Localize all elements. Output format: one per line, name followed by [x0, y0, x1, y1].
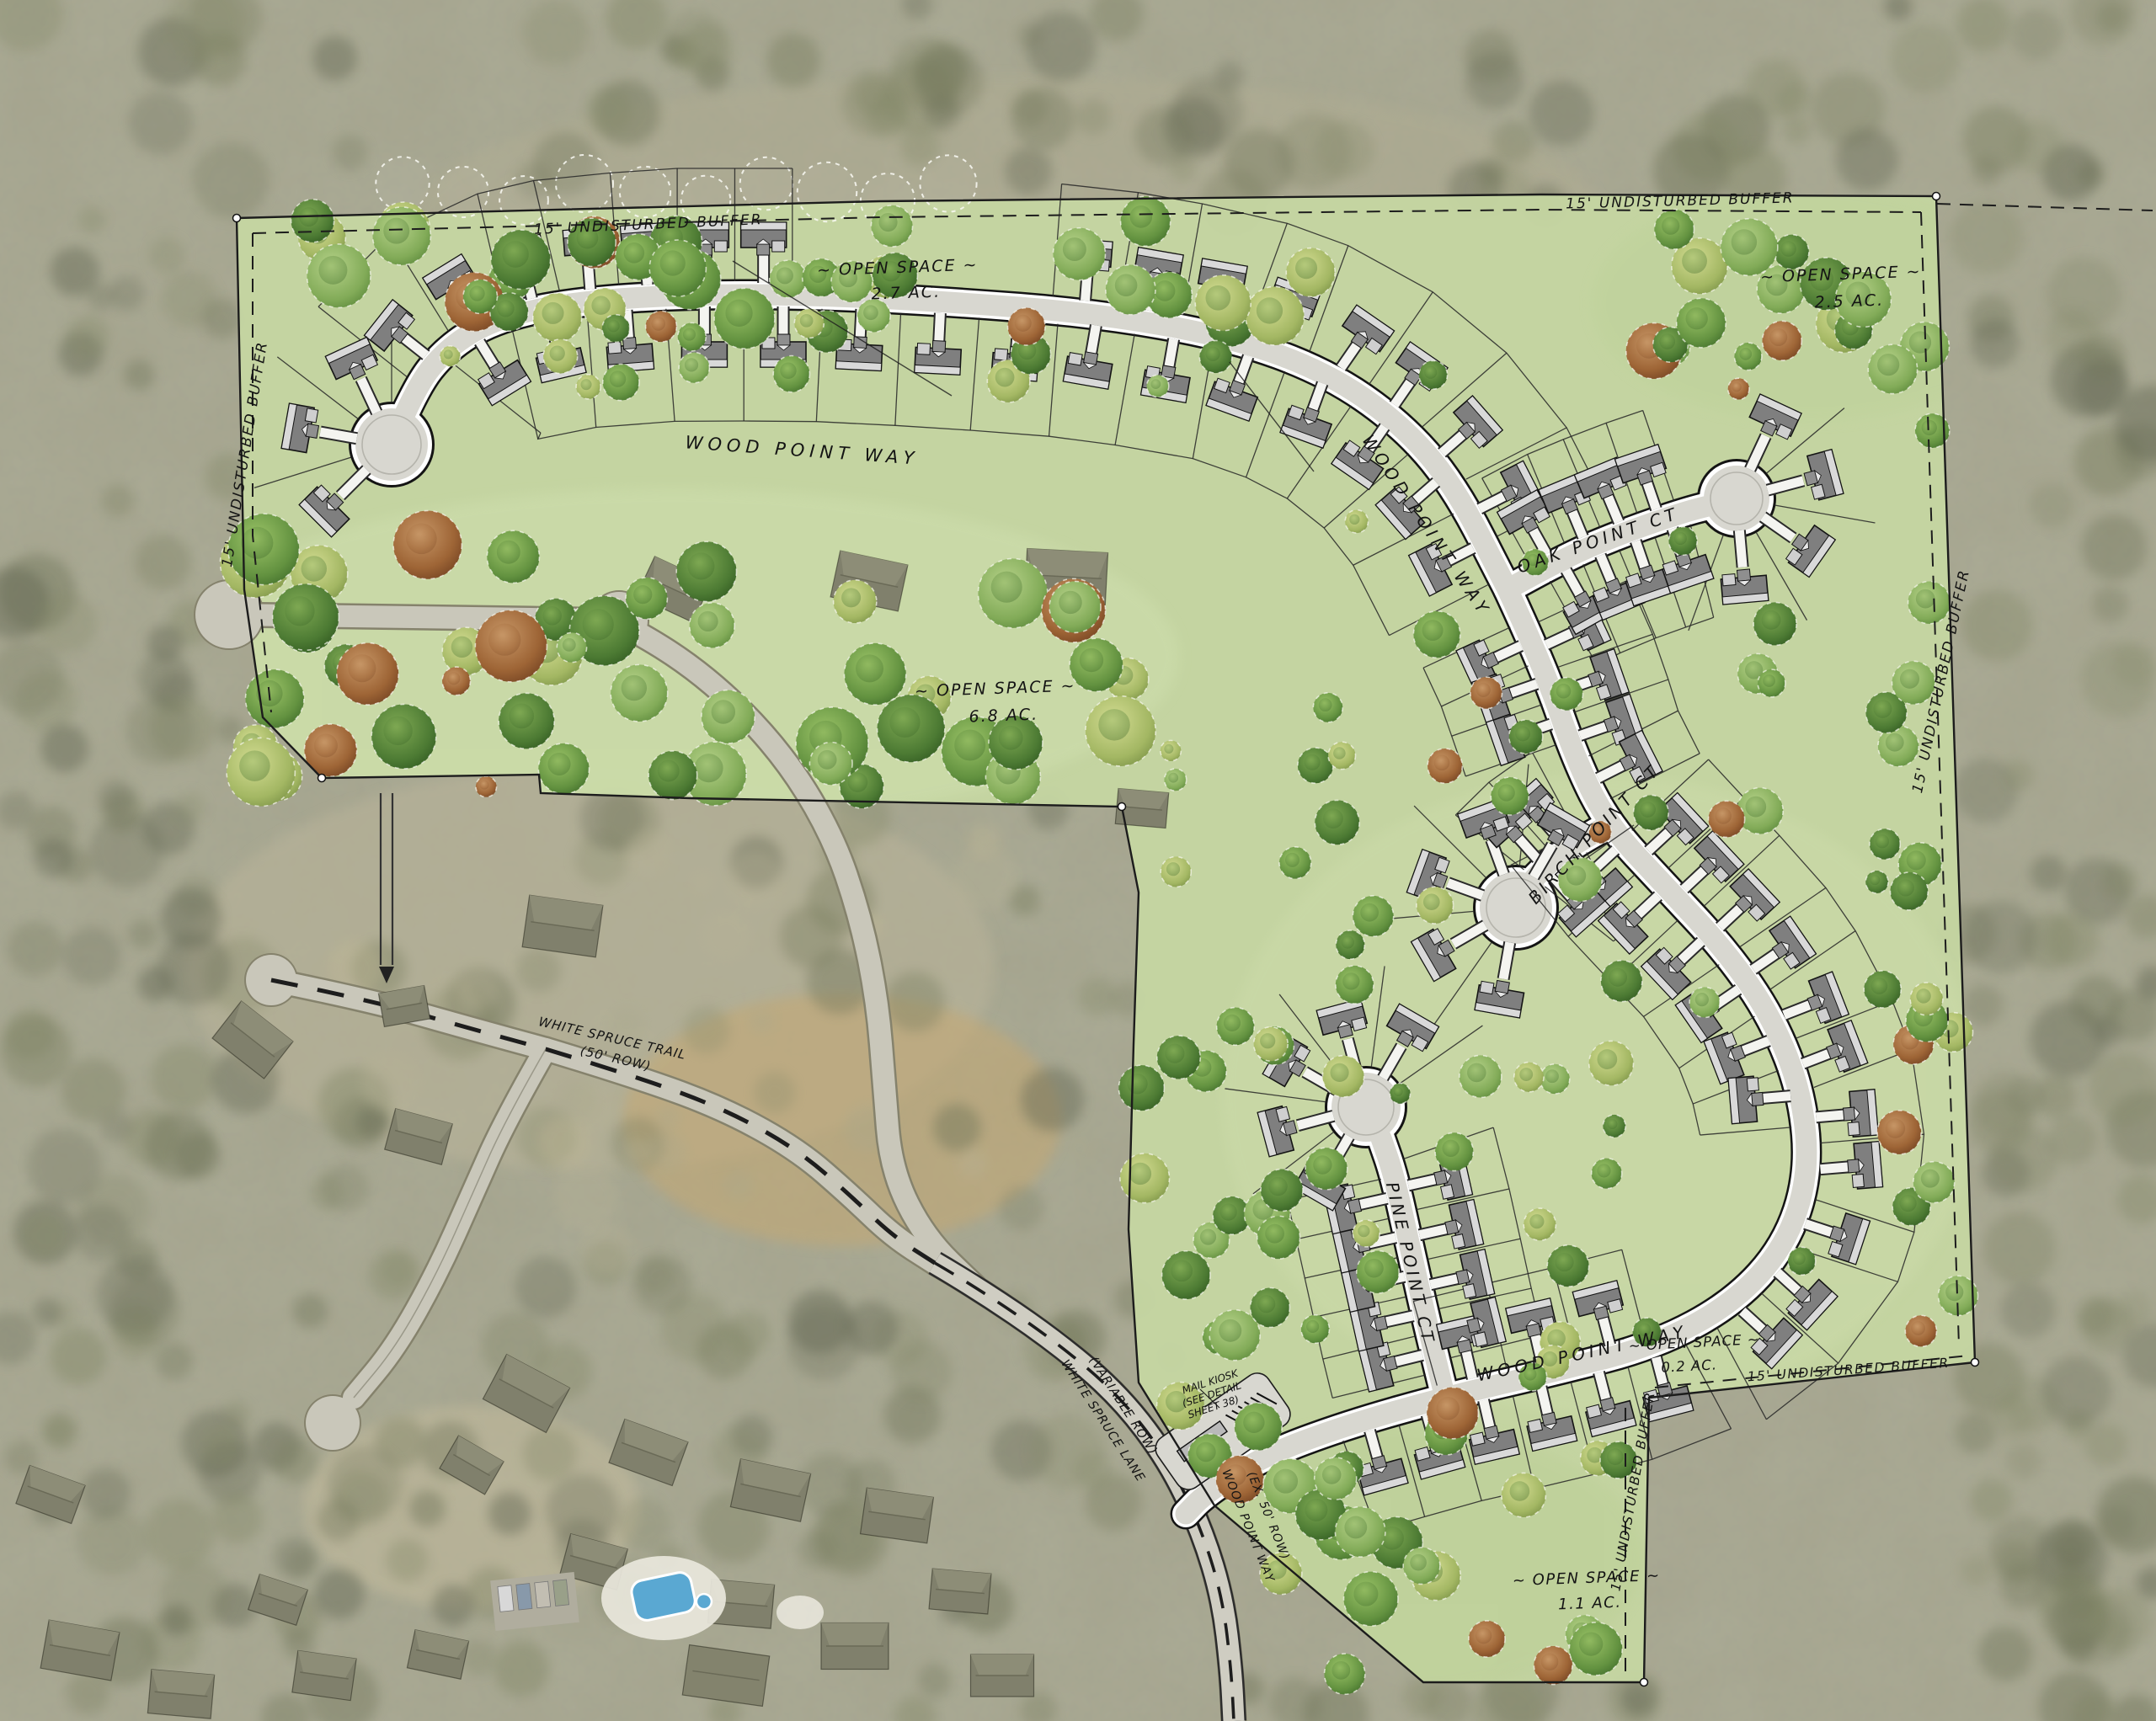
canopy-shade [1129, 1163, 1151, 1185]
canopy-shade [856, 654, 883, 682]
tree [676, 541, 736, 601]
forest-canopy [2011, 120, 2064, 173]
tree [1540, 1064, 1569, 1094]
label-open_spaces-1-acreage: 2.5 AC. [1814, 291, 1884, 312]
canopy-shade [1319, 698, 1332, 711]
driveway [1739, 530, 1742, 567]
survey-corner-marker [1933, 193, 1940, 200]
garage [1441, 1185, 1454, 1199]
ornamental-tree [1762, 321, 1801, 360]
tree [1353, 896, 1393, 936]
forest-canopy [683, 1006, 730, 1053]
ornamental-tree [1728, 378, 1749, 399]
forest-canopy [1075, 99, 1111, 135]
tree [576, 375, 600, 399]
forest-canopy [1783, 116, 1811, 144]
canopy-shade [447, 672, 460, 685]
forest-canopy [78, 206, 105, 233]
tree [1569, 1622, 1622, 1676]
tree [1315, 800, 1359, 845]
forest-canopy [1214, 61, 1244, 91]
tree [1147, 375, 1169, 397]
tree [648, 751, 697, 800]
ornamental-tree [646, 311, 677, 342]
existing-house [971, 1654, 1034, 1697]
survey-corner-marker [318, 775, 326, 782]
tree [1419, 360, 1448, 389]
canopy-shade [1674, 532, 1687, 545]
canopy-shade [239, 750, 270, 781]
forest-canopy [72, 1204, 130, 1261]
canopy-shade [547, 753, 570, 775]
tree [1336, 966, 1374, 1004]
ornamental-tree [1007, 308, 1045, 346]
tree [1298, 748, 1333, 783]
cleared-texture [539, 1116, 591, 1169]
forest-canopy [725, 1311, 771, 1356]
forest-canopy [27, 1129, 102, 1204]
forest-canopy [1950, 201, 2023, 274]
tree [626, 578, 667, 619]
forest-canopy [2007, 1444, 2041, 1479]
forest-canopy [766, 34, 820, 88]
canopy-shade [1305, 1499, 1327, 1521]
forest-canopy [8, 921, 63, 977]
canopy-shade [1342, 972, 1359, 989]
tree [371, 704, 436, 769]
forest-canopy [1978, 1627, 2032, 1681]
existing-culdesac [306, 1396, 360, 1450]
forest-canopy [517, 948, 561, 992]
forest-canopy [2041, 1356, 2111, 1426]
tree [1654, 210, 1694, 249]
tree [557, 632, 586, 662]
driveway [320, 432, 356, 439]
forest-canopy [2045, 913, 2099, 967]
existing-house [821, 1623, 889, 1670]
canopy-shade [1442, 1140, 1459, 1157]
forest-canopy [2094, 1018, 2122, 1047]
driveway [1168, 339, 1174, 370]
canopy-shade [776, 267, 793, 284]
forest-canopy [175, 1132, 221, 1178]
cleared-texture [952, 845, 1017, 910]
cleared-texture [456, 969, 499, 1011]
forest-canopy [151, 1044, 217, 1111]
forest-canopy [44, 1415, 72, 1443]
canopy-shade [1597, 1164, 1610, 1177]
canopy-shade [1257, 297, 1283, 323]
garage [1528, 1419, 1543, 1432]
canopy-shade [451, 637, 472, 658]
canopy-shade [1434, 755, 1450, 771]
canopy-shade [1422, 620, 1444, 641]
driveway [1821, 1166, 1853, 1169]
amenity-structure [776, 1596, 824, 1629]
forest-canopy [124, 360, 155, 391]
tree [1286, 248, 1335, 297]
canopy-shade [348, 654, 376, 682]
canopy-shade [889, 707, 920, 738]
forest-canopy [128, 919, 157, 949]
forest-canopy [1402, 1677, 1442, 1717]
tree [1257, 1216, 1300, 1259]
garage [1474, 1332, 1487, 1347]
tree [1677, 298, 1726, 347]
canopy-shade [800, 314, 814, 328]
canopy-shade [1739, 348, 1752, 360]
canopy-shade [1870, 978, 1887, 994]
garage [305, 408, 318, 423]
canopy-shade [1907, 850, 1926, 870]
canopy-shade [1640, 802, 1656, 818]
tree [1788, 1247, 1816, 1275]
canopy-shade [999, 726, 1023, 750]
forest-canopy [34, 839, 72, 877]
tree [1603, 1115, 1625, 1138]
canopy-shade [991, 572, 1022, 603]
canopy-shade [1330, 1063, 1348, 1082]
canopy-shade [1769, 328, 1787, 346]
garage [1452, 1234, 1465, 1249]
tree [1509, 720, 1543, 754]
forest-canopy [99, 780, 134, 815]
ornamental-tree [1470, 677, 1502, 709]
forest-canopy [175, 792, 205, 823]
forest-canopy [36, 593, 97, 653]
forest-canopy [136, 535, 191, 590]
canopy-shade [1900, 669, 1919, 689]
forest-canopy [161, 888, 221, 949]
tree [273, 584, 339, 651]
tree [1734, 343, 1762, 370]
forest-canopy [1963, 985, 2004, 1026]
canopy-shade [1916, 988, 1930, 1003]
canopy-shade [1166, 862, 1180, 876]
forest-canopy [680, 24, 732, 76]
front-gable [777, 334, 790, 345]
forest-canopy [314, 1569, 365, 1619]
canopy-shade [1353, 1582, 1378, 1606]
forest-canopy [2047, 257, 2121, 332]
canopy-shade [241, 527, 273, 559]
tree [1336, 930, 1364, 959]
canopy-shade [1870, 875, 1880, 885]
tree [978, 558, 1047, 627]
canopy-shade [1410, 1554, 1427, 1571]
forest-canopy [2011, 8, 2063, 60]
canopy-shade [995, 368, 1015, 387]
canopy-shade [497, 300, 514, 317]
canopy-shade [1498, 784, 1515, 801]
canopy-shade [1200, 1228, 1216, 1244]
forest-canopy [586, 88, 632, 134]
tree [1161, 856, 1191, 887]
canopy-shade [1205, 285, 1230, 311]
tree-save-circle [740, 157, 793, 210]
forest-canopy [33, 1297, 61, 1326]
parked-car [535, 1581, 551, 1608]
canopy-shade [1555, 1253, 1573, 1271]
cleared-texture [558, 1081, 597, 1120]
forest-canopy [2101, 863, 2138, 900]
tree [1261, 1170, 1303, 1212]
canopy-shade [1313, 1155, 1331, 1174]
canopy-shade [1130, 205, 1153, 228]
front-gable [757, 244, 770, 255]
canopy-shade [818, 750, 837, 770]
forest-canopy [1955, 1413, 1996, 1454]
canopy-shade [406, 524, 437, 555]
tree [611, 664, 668, 722]
canopy-shade [863, 305, 878, 320]
tree [1390, 1083, 1410, 1103]
canopy-shade [1358, 1225, 1369, 1237]
forest-canopy [1529, 81, 1593, 146]
forest-canopy [109, 276, 145, 312]
front-gable [932, 340, 946, 352]
forest-canopy [161, 1561, 230, 1630]
forest-canopy [1011, 88, 1074, 150]
roof-facet [971, 1654, 1034, 1676]
parked-car [516, 1584, 532, 1611]
canopy-shade [1150, 379, 1161, 389]
forest-canopy [2006, 1077, 2045, 1116]
canopy-shade [1127, 1074, 1147, 1094]
forest-canopy [147, 626, 183, 662]
forest-canopy [1026, 12, 1096, 82]
ornamental-tree [442, 667, 471, 695]
canopy-shade [1424, 366, 1437, 379]
tree [1324, 1654, 1364, 1694]
tree [773, 356, 809, 392]
tree [1344, 1572, 1398, 1626]
existing-house [522, 895, 603, 957]
canopy-shade [479, 781, 488, 790]
forest-canopy [2003, 760, 2034, 791]
canopy-shade [1876, 834, 1889, 848]
canopy-shade [1349, 514, 1359, 525]
tree-save-circle [556, 155, 613, 212]
cleared-texture [581, 1223, 632, 1275]
canopy-shade [497, 541, 520, 564]
forest-canopy [61, 1058, 126, 1123]
canopy-shade [1909, 331, 1931, 353]
tree [1413, 611, 1460, 658]
cleared-texture [723, 1170, 754, 1200]
canopy-shade [1265, 1224, 1284, 1244]
garage [1722, 574, 1736, 586]
canopy-shade [1945, 1283, 1963, 1301]
forest-canopy [211, 1493, 263, 1544]
canopy-shade [1219, 1319, 1241, 1342]
parking-lot [490, 1572, 579, 1631]
garage [772, 241, 785, 252]
forest-canopy [1961, 590, 2033, 662]
canopy-shade [1243, 1412, 1264, 1433]
cleared-texture [958, 1148, 988, 1178]
tree [1550, 678, 1582, 711]
canopy-shade [687, 552, 714, 579]
parked-car [553, 1580, 569, 1606]
canopy-shade [1331, 1661, 1350, 1680]
tree [1514, 1063, 1544, 1092]
garage [1470, 1432, 1486, 1446]
tree [1357, 1250, 1399, 1292]
tree [245, 669, 303, 727]
label-open_spaces-2-acreage: 6.8 AC. [969, 706, 1038, 727]
garage [917, 344, 931, 355]
forest-canopy [0, 1015, 72, 1087]
tree [373, 207, 431, 265]
forest-canopy [1492, 120, 1535, 163]
forest-canopy [2030, 855, 2067, 892]
canopy-shade [1763, 674, 1775, 687]
cleared-texture [656, 1106, 680, 1130]
canopy-shade [651, 317, 665, 331]
tree [1353, 1220, 1380, 1247]
tree [1195, 275, 1251, 331]
forest-canopy [891, 1340, 953, 1402]
canopy-shade [1260, 1033, 1275, 1048]
canopy-shade [1662, 217, 1679, 235]
forest-canopy [1991, 1125, 2057, 1191]
site-plan-page: 15' UNDISTURBED BUFFER15' UNDISTURBED BU… [0, 0, 2156, 1721]
tree [1910, 983, 1943, 1015]
canopy-shade [1467, 1063, 1486, 1083]
tree [871, 205, 912, 247]
tree [1753, 602, 1796, 645]
canopy-shade [1285, 853, 1299, 867]
forest-canopy [2077, 160, 2104, 187]
canopy-shade [1476, 683, 1491, 697]
canopy-shade [1659, 333, 1675, 349]
cleared-texture [360, 1052, 421, 1112]
forest-canopy [2112, 642, 2156, 687]
tree [1161, 740, 1182, 761]
forest-canopy [1005, 147, 1052, 194]
tree [878, 695, 945, 762]
tree [690, 603, 735, 648]
canopy-shade [1364, 1259, 1384, 1278]
canopy-shade [1273, 1469, 1298, 1494]
tree [227, 738, 295, 806]
front-gable [1848, 1159, 1860, 1173]
forest-canopy [1135, 107, 1194, 166]
garage [995, 349, 1008, 360]
tree [770, 260, 807, 297]
ornamental-tree [337, 643, 398, 705]
existing-house [929, 1569, 991, 1614]
canopy-shade [1063, 237, 1086, 261]
forest-canopy [617, 1498, 670, 1551]
tree-save-circle [620, 167, 670, 217]
canopy-shade [1780, 241, 1796, 257]
tree [291, 200, 334, 242]
survey-corner-marker [1972, 1359, 1979, 1367]
forest-canopy [915, 46, 983, 115]
cleared-texture [749, 1008, 775, 1034]
ornamental-tree [1905, 1315, 1936, 1346]
canopy-shade [1476, 1628, 1492, 1644]
tree [499, 693, 554, 749]
tree [844, 643, 905, 705]
tree [1049, 581, 1101, 632]
canopy-shade [1911, 1321, 1925, 1335]
tree [1217, 1008, 1255, 1046]
forest-canopy [1891, 24, 1960, 93]
clubhouse [682, 1645, 769, 1707]
forest-canopy [321, 1164, 369, 1212]
tree [1164, 769, 1186, 791]
forest-canopy [2029, 483, 2073, 528]
tree [1199, 340, 1232, 373]
existing-house [378, 986, 430, 1027]
canopy-shade [1164, 744, 1173, 754]
forest-canopy [149, 237, 185, 274]
canopy-shade [1436, 1397, 1460, 1420]
tree [1246, 286, 1305, 345]
canopy-shade [1607, 1448, 1624, 1465]
parked-car [498, 1585, 514, 1612]
forest-canopy [1961, 1556, 1992, 1587]
survey-corner-marker [1641, 1679, 1648, 1686]
front-gable [1752, 1092, 1764, 1106]
forest-canopy [1030, 1414, 1104, 1488]
forest-canopy [2000, 1283, 2055, 1338]
tree [1502, 1473, 1546, 1517]
forest-canopy [1995, 1541, 2035, 1580]
canopy-shade [1545, 1069, 1559, 1083]
tree [1668, 527, 1697, 556]
canopy-shade [1205, 347, 1219, 361]
canopy-shade [1793, 1252, 1806, 1265]
canopy-shade [1394, 1087, 1403, 1096]
tree [1589, 1041, 1634, 1085]
ornamental-tree [1469, 1621, 1505, 1657]
tree [1305, 1148, 1347, 1190]
canopy-shade [583, 609, 614, 640]
canopy-shade [624, 242, 645, 264]
canopy-shade [622, 675, 647, 701]
canopy-shade [1080, 648, 1103, 672]
tree-save-circle [920, 155, 976, 211]
forest-canopy [114, 1317, 159, 1362]
canopy-shade [488, 624, 520, 656]
canopy-shade [685, 358, 698, 371]
forest-canopy [754, 1072, 795, 1113]
tree [1086, 696, 1155, 766]
forest-canopy [632, 1255, 691, 1314]
canopy-shade [1155, 280, 1176, 301]
forest-canopy [2092, 586, 2128, 622]
canopy-shade [1515, 726, 1530, 741]
label-open_spaces-4-acreage: 1.1 AC. [1558, 1594, 1622, 1614]
forest-canopy [1836, 128, 1898, 190]
canopy-shade [1715, 807, 1731, 823]
tree [1865, 871, 1888, 893]
tree [1315, 1457, 1357, 1500]
canopy-shade [580, 379, 591, 390]
canopy-shade [725, 300, 752, 327]
tree [1913, 1162, 1955, 1203]
ornamental-tree [476, 776, 497, 797]
forest-canopy [312, 36, 357, 81]
tree [1070, 638, 1123, 691]
canopy-shade [1579, 1632, 1603, 1655]
cleared-texture [1062, 1131, 1097, 1165]
canopy-shade [1732, 382, 1741, 392]
